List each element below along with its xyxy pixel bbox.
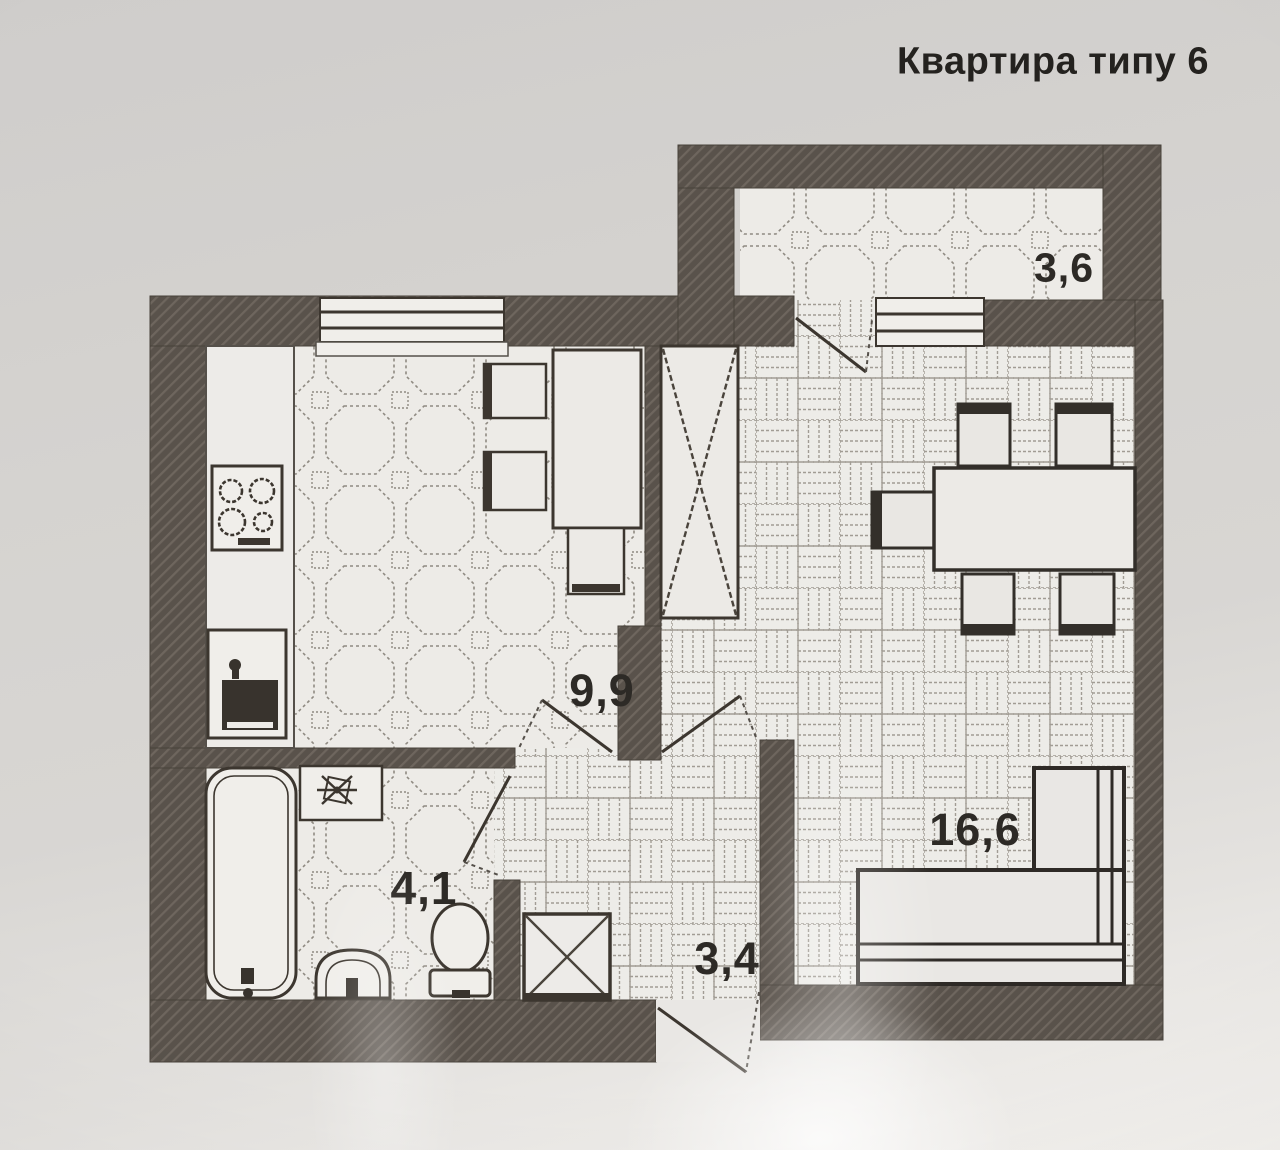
floor-plan-photo: Квартира типу 6 <box>0 0 1280 1150</box>
area-label-living-room: 16,6 <box>929 804 1021 856</box>
wall-right-outer <box>1135 300 1163 1040</box>
wall-kitchen-living-divider <box>645 346 661 626</box>
balcony-window <box>876 298 984 346</box>
washbasin-icon <box>316 950 390 998</box>
vent-shaft-icon <box>661 346 738 618</box>
kitchen-chair <box>484 452 546 510</box>
dining-table-icon <box>934 468 1135 570</box>
chair-icon <box>1056 404 1112 466</box>
fan-appliance-icon <box>300 766 382 820</box>
wall-bottom-right <box>760 985 1163 1040</box>
wall-balcony-living-right <box>982 300 1138 346</box>
kitchen-table <box>553 350 641 528</box>
wall-hall-living <box>760 740 794 985</box>
chair-icon <box>872 492 934 548</box>
chair-icon <box>962 574 1014 634</box>
area-label-balcony: 3,6 <box>1034 245 1094 292</box>
chair-icon <box>958 404 1010 466</box>
floor-plan: 3,6 9,9 4,1 3,4 16,6 <box>0 0 1280 1150</box>
kitchen-sink-icon <box>208 630 286 738</box>
kitchen-window <box>316 298 508 356</box>
plan-drawing <box>0 0 1280 1150</box>
bathtub-icon <box>206 768 296 998</box>
area-label-kitchen: 9,9 <box>569 665 635 717</box>
chair-icon <box>1060 574 1114 634</box>
wall-balcony-right <box>1103 145 1161 311</box>
wall-balcony-top <box>678 145 1105 188</box>
kitchen-window-sill <box>316 342 508 356</box>
balcony-door-threshold <box>794 300 876 348</box>
toilet-icon <box>430 904 490 998</box>
wall-left-outer <box>150 296 206 1062</box>
stove-icon <box>212 466 282 550</box>
entrance-opening <box>656 1000 760 1062</box>
wardrobe-icon <box>524 914 610 1000</box>
area-label-bathroom: 4,1 <box>391 861 458 915</box>
wall-bathroom-hall <box>494 880 520 1000</box>
stool-icon <box>568 528 624 594</box>
kitchen-chair <box>484 364 546 418</box>
wall-bottom-left <box>150 1000 656 1062</box>
area-label-hallway: 3,4 <box>694 933 760 985</box>
